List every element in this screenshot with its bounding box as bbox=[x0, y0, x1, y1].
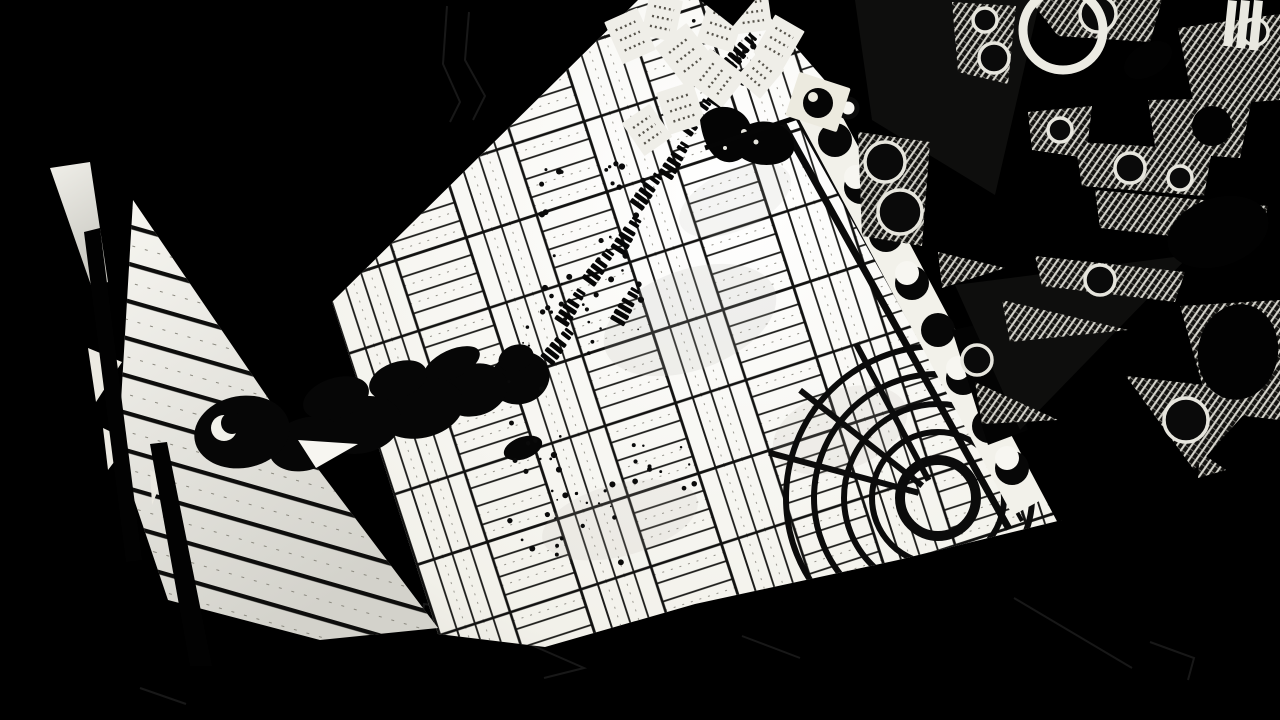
game-viewport[interactable] bbox=[0, 0, 1280, 720]
railing-bars bbox=[1223, 0, 1263, 51]
scene-canvas bbox=[0, 0, 1280, 720]
